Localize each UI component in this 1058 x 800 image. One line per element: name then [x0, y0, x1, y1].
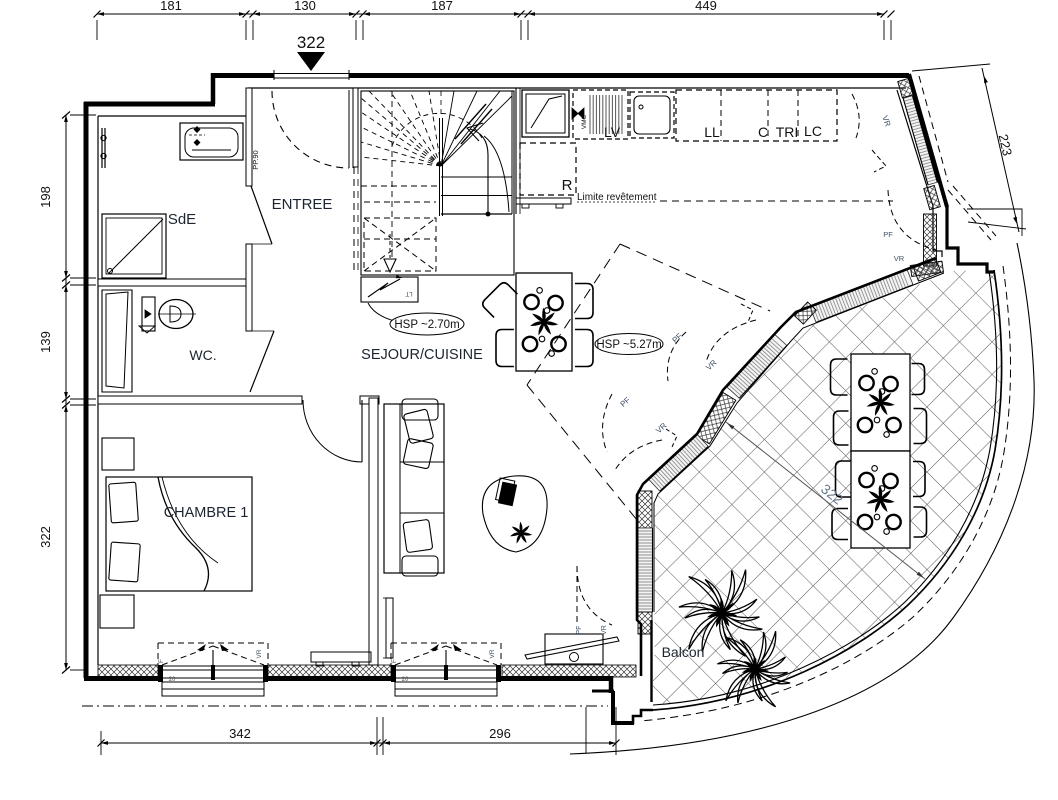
svg-text:VR: VR: [489, 649, 496, 658]
svg-text:Limite revêtement: Limite revêtement: [577, 192, 657, 203]
svg-text:SEJOUR/CUISINE: SEJOUR/CUISINE: [361, 347, 483, 363]
svg-text:187: 187: [431, 0, 453, 13]
svg-text:VR: VR: [256, 649, 263, 658]
svg-text:HSP ~5.27m: HSP ~5.27m: [596, 339, 661, 351]
svg-text:VR: VR: [601, 625, 608, 635]
svg-text:322: 322: [297, 33, 325, 52]
svg-text:139: 139: [38, 331, 53, 353]
svg-text:LT: LT: [405, 290, 412, 297]
svg-text:F: F: [158, 659, 165, 663]
svg-text:LC: LC: [804, 123, 822, 139]
svg-text:20: 20: [402, 677, 409, 683]
svg-text:PF: PF: [576, 626, 583, 635]
svg-text:449: 449: [695, 0, 717, 13]
svg-text:HSP ~2.70m: HSP ~2.70m: [394, 319, 459, 331]
svg-text:PP.90: PP.90: [251, 150, 260, 169]
svg-text:F: F: [391, 659, 398, 663]
svg-text:VR: VR: [894, 254, 905, 263]
svg-text:296: 296: [489, 726, 511, 741]
svg-text:C: C: [758, 124, 768, 140]
svg-text:Balcon: Balcon: [662, 644, 705, 660]
svg-text:TRI: TRI: [776, 124, 799, 140]
svg-text:181: 181: [160, 0, 182, 13]
svg-text:20: 20: [169, 677, 176, 683]
svg-text:WC.: WC.: [189, 347, 216, 363]
svg-text:198: 198: [38, 186, 53, 208]
svg-text:SdE: SdE: [168, 211, 196, 228]
svg-text:CHAMBRE 1: CHAMBRE 1: [164, 505, 249, 521]
svg-text:R: R: [562, 177, 573, 194]
svg-text:322: 322: [38, 526, 53, 548]
svg-text:130: 130: [294, 0, 316, 13]
svg-text:ENTREE: ENTREE: [272, 196, 333, 213]
svg-text:PF: PF: [883, 230, 893, 239]
svg-text:342: 342: [229, 726, 251, 741]
svg-text:VMC: VMC: [581, 114, 588, 129]
svg-text:LV: LV: [604, 124, 621, 140]
svg-text:LL: LL: [704, 124, 720, 140]
